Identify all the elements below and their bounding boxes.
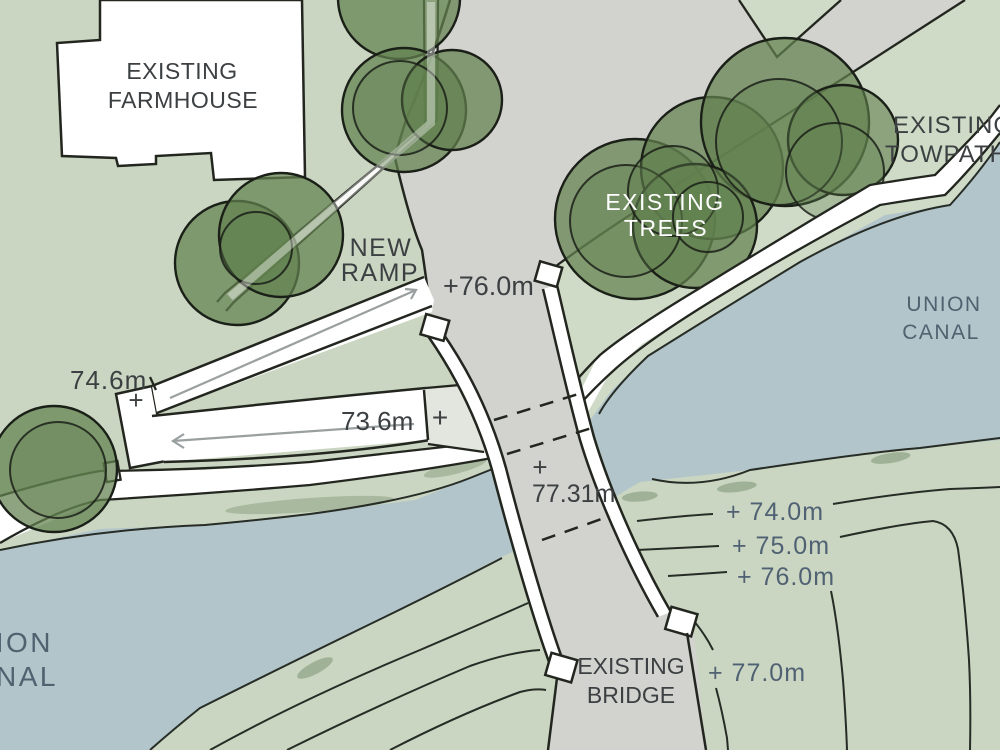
svg-text:+: + — [532, 452, 547, 482]
svg-text:RAMP: RAMP — [341, 259, 419, 287]
svg-text:EXISTING: EXISTING — [605, 189, 724, 215]
svg-text:77.31m: 77.31m — [532, 480, 615, 508]
svg-text:NEW: NEW — [350, 234, 413, 262]
svg-text:EXISTING: EXISTING — [126, 58, 237, 84]
svg-text:FARMHOUSE: FARMHOUSE — [108, 87, 258, 113]
svg-text:EXISTING: EXISTING — [893, 112, 1000, 139]
svg-text:UNION: UNION — [906, 293, 981, 316]
svg-text:+ 77.0m: + 77.0m — [708, 659, 806, 687]
svg-text:+ 74.0m: + 74.0m — [726, 498, 824, 526]
svg-text:EXISTING: EXISTING — [577, 653, 684, 679]
svg-text:CANAL: CANAL — [0, 661, 58, 692]
svg-text:+: + — [128, 385, 143, 415]
svg-text:TOWPATH: TOWPATH — [885, 141, 1000, 168]
svg-text:TREES: TREES — [624, 215, 708, 241]
svg-text:CANAL: CANAL — [902, 321, 980, 344]
svg-text:+76.0m: +76.0m — [443, 271, 534, 301]
svg-text:+: + — [432, 402, 448, 433]
svg-text:73.6m: 73.6m — [341, 406, 413, 436]
svg-text:UNION: UNION — [0, 627, 53, 658]
svg-text:+ 75.0m: + 75.0m — [732, 532, 830, 560]
svg-text:BRIDGE: BRIDGE — [587, 682, 675, 708]
svg-text:+ 76.0m: + 76.0m — [737, 563, 835, 591]
